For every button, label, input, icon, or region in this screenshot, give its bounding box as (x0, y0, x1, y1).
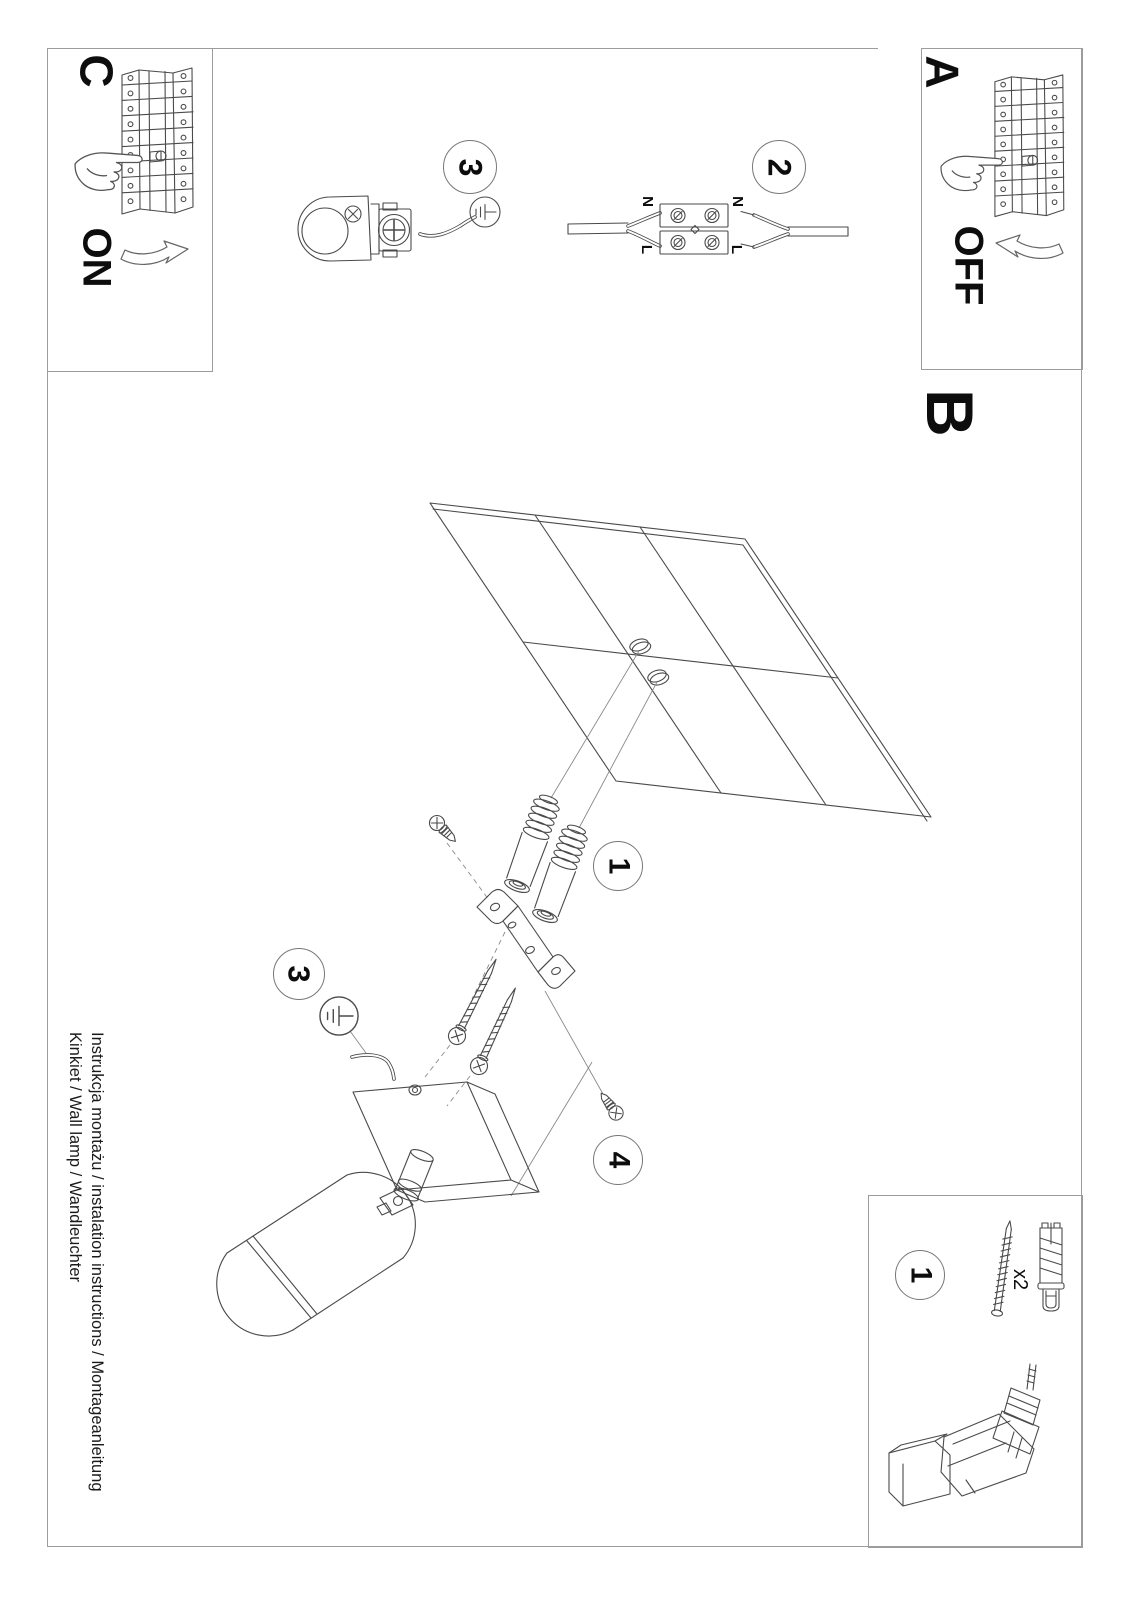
panel-b-label: B (910, 373, 990, 453)
terminal-label-n-left: N (635, 189, 659, 213)
footer-line-1: Instrukcja montażu / instalation instruc… (86, 1032, 108, 1492)
parts-anchor-icon (1038, 1223, 1064, 1311)
drill-icon (889, 1364, 1040, 1506)
callout-step-2: 2 (752, 140, 806, 194)
wire-connector-drawing (568, 204, 848, 254)
wall-anchor-icon (503, 792, 563, 895)
on-label: ON (61, 222, 131, 292)
footer-text: Instrukcja montażu / instalation instruc… (64, 1032, 108, 1492)
panel-a-label: A (913, 42, 973, 102)
parts-quantity-label: x2 (1000, 1259, 1040, 1299)
callout-step-3-top: 3 (443, 140, 497, 194)
ground-symbol-icon (470, 197, 500, 227)
arrow-on-icon (121, 241, 188, 264)
wood-screw-icon (446, 956, 504, 1048)
instruction-sheet: C ON A OFF B N N L L 3 2 1 3 4 1 x2 (0, 0, 1131, 1600)
off-label: OFF (923, 220, 1013, 310)
terminal-label-n-right: N (725, 189, 749, 213)
breaker-panel-icon (122, 68, 193, 214)
fixing-screw-icon (595, 1089, 626, 1123)
callout-step-3-lamp: 3 (273, 948, 325, 1000)
lamp-drawing (217, 1055, 539, 1336)
terminal-label-l-left: L (635, 237, 659, 261)
callout-parts: 1 (895, 1250, 945, 1300)
ring-terminal-drawing (298, 196, 475, 261)
callout-step-4: 4 (593, 1135, 643, 1185)
wall-anchor-icon (531, 822, 591, 925)
hand-icon (941, 156, 1002, 190)
breaker-panel-icon (995, 75, 1064, 217)
ground-symbol-icon (320, 997, 358, 1035)
callout-step-1: 1 (593, 841, 643, 891)
small-screw-icon (426, 812, 460, 846)
wall-drawing (430, 503, 931, 821)
terminal-label-l-right: L (725, 237, 749, 261)
wood-screw-icon (468, 984, 523, 1077)
panel-c-label: C (67, 41, 127, 101)
footer-line-2: Kinkiet / Wall lamp / Wandleuchter (64, 1032, 86, 1492)
